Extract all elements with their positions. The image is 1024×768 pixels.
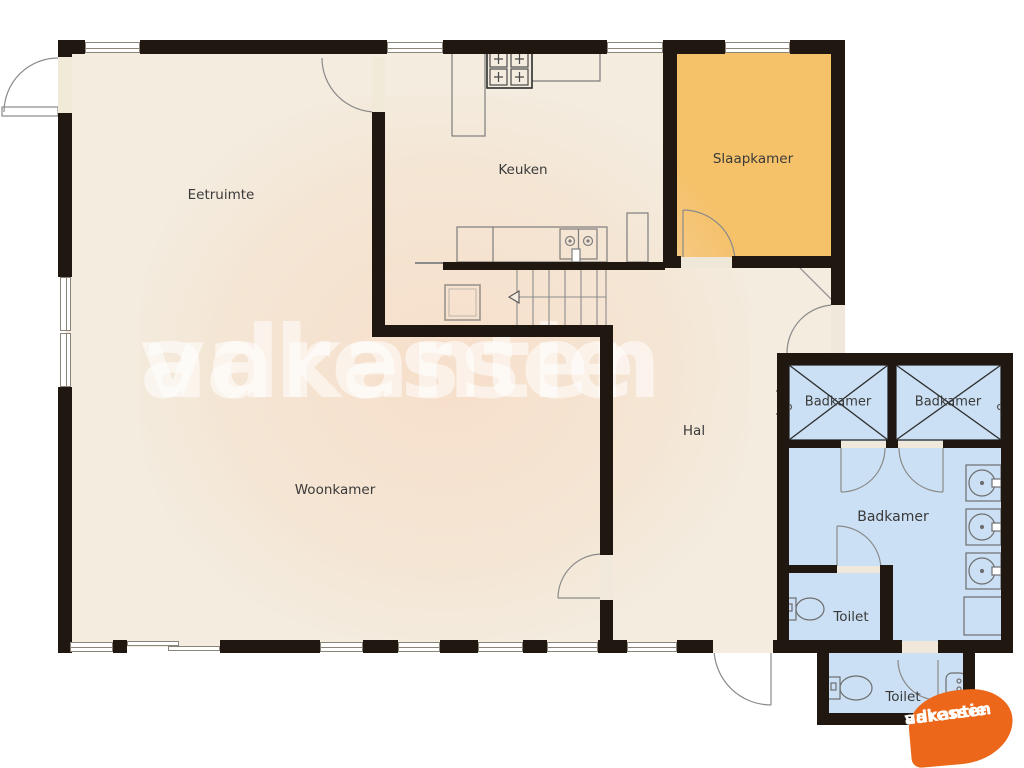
window-mullion [628, 647, 676, 648]
wall-segment [886, 440, 898, 448]
wall-segment [789, 440, 841, 448]
wall-segment [443, 262, 665, 270]
window-mullion [726, 48, 789, 49]
window-mullion [66, 278, 67, 330]
wall-segment [777, 365, 789, 640]
label-toilet-upper: Toilet [833, 609, 868, 625]
wall-segment [372, 325, 613, 337]
window [85, 42, 140, 53]
wall-segment [113, 640, 127, 653]
wall-segment [1001, 365, 1013, 640]
sliding-door [168, 646, 220, 651]
wall-segment [663, 40, 677, 268]
wall-segment [598, 640, 627, 653]
window [70, 642, 113, 652]
window-mullion [321, 647, 362, 648]
door-opening [831, 305, 845, 353]
wall-segment [943, 440, 1001, 448]
window [60, 333, 71, 387]
wall-segment [938, 640, 1013, 653]
wall-segment [677, 256, 681, 268]
window-mullion [388, 48, 442, 49]
vakantieadressen-logo: vakantie adressen [903, 688, 1015, 766]
wall-segment [443, 40, 607, 54]
wall-segment [600, 600, 613, 640]
wall-segment [372, 112, 385, 337]
wall-segment [58, 113, 72, 277]
window [478, 642, 523, 652]
wall-segment [732, 256, 845, 268]
window-mullion [608, 48, 662, 49]
door-opening [841, 441, 886, 448]
window [725, 42, 790, 53]
window [320, 642, 363, 652]
door-opening [58, 57, 72, 113]
label-keuken: Keuken [498, 162, 547, 178]
window [398, 642, 440, 652]
window [627, 642, 677, 652]
stairs [509, 268, 606, 325]
wall-segment [523, 640, 547, 653]
shower-tray-icon [964, 597, 1003, 635]
window-mullion [399, 647, 439, 648]
window-mullion [66, 334, 67, 386]
wall-segment [58, 40, 85, 54]
washbasin-icons [964, 465, 1003, 635]
window [547, 642, 598, 652]
window-mullion [548, 647, 597, 648]
window [60, 277, 71, 331]
label-hal: Hal [683, 423, 705, 439]
wall-segment [831, 265, 845, 305]
wall-segment [817, 653, 829, 717]
door-opening [713, 641, 773, 653]
label-eetruimte: Eetruimte [188, 187, 255, 203]
wall-segment [831, 40, 845, 265]
door-opening [681, 257, 732, 268]
window-mullion [479, 647, 522, 648]
wall-segment [600, 337, 613, 555]
door-opening [898, 441, 943, 448]
label-woonkamer: Woonkamer [295, 482, 376, 498]
wall-segment [880, 565, 893, 648]
wall-segment [777, 353, 1013, 365]
closet [445, 285, 480, 320]
wall-segment [677, 640, 713, 653]
wall-segment [888, 365, 896, 448]
wall-segment [58, 640, 70, 653]
stove-icon [487, 48, 532, 88]
kitchen-counter [452, 48, 648, 262]
doors [2, 58, 943, 705]
window [607, 42, 663, 53]
window [387, 42, 443, 53]
wall-segment [789, 565, 837, 573]
door-opening [902, 641, 938, 653]
label-badkamer-main: Badkamer [857, 509, 929, 525]
wall-segment [58, 387, 72, 653]
window-mullion [86, 48, 139, 49]
label-badkamer-left: Badkamer [805, 395, 871, 410]
wall-segment [220, 640, 320, 653]
door-opening [600, 555, 613, 600]
door-opening [837, 566, 881, 573]
wall-segment [140, 40, 387, 54]
floorplan: vakantie adressen [0, 0, 1024, 768]
wall-segment [440, 640, 478, 653]
label-badkamer-right: Badkamer [915, 395, 981, 410]
label-slaapkamer: Slaapkamer [713, 151, 793, 167]
window-mullion [71, 647, 112, 648]
wall-segment [363, 640, 398, 653]
door-opening [372, 57, 385, 112]
